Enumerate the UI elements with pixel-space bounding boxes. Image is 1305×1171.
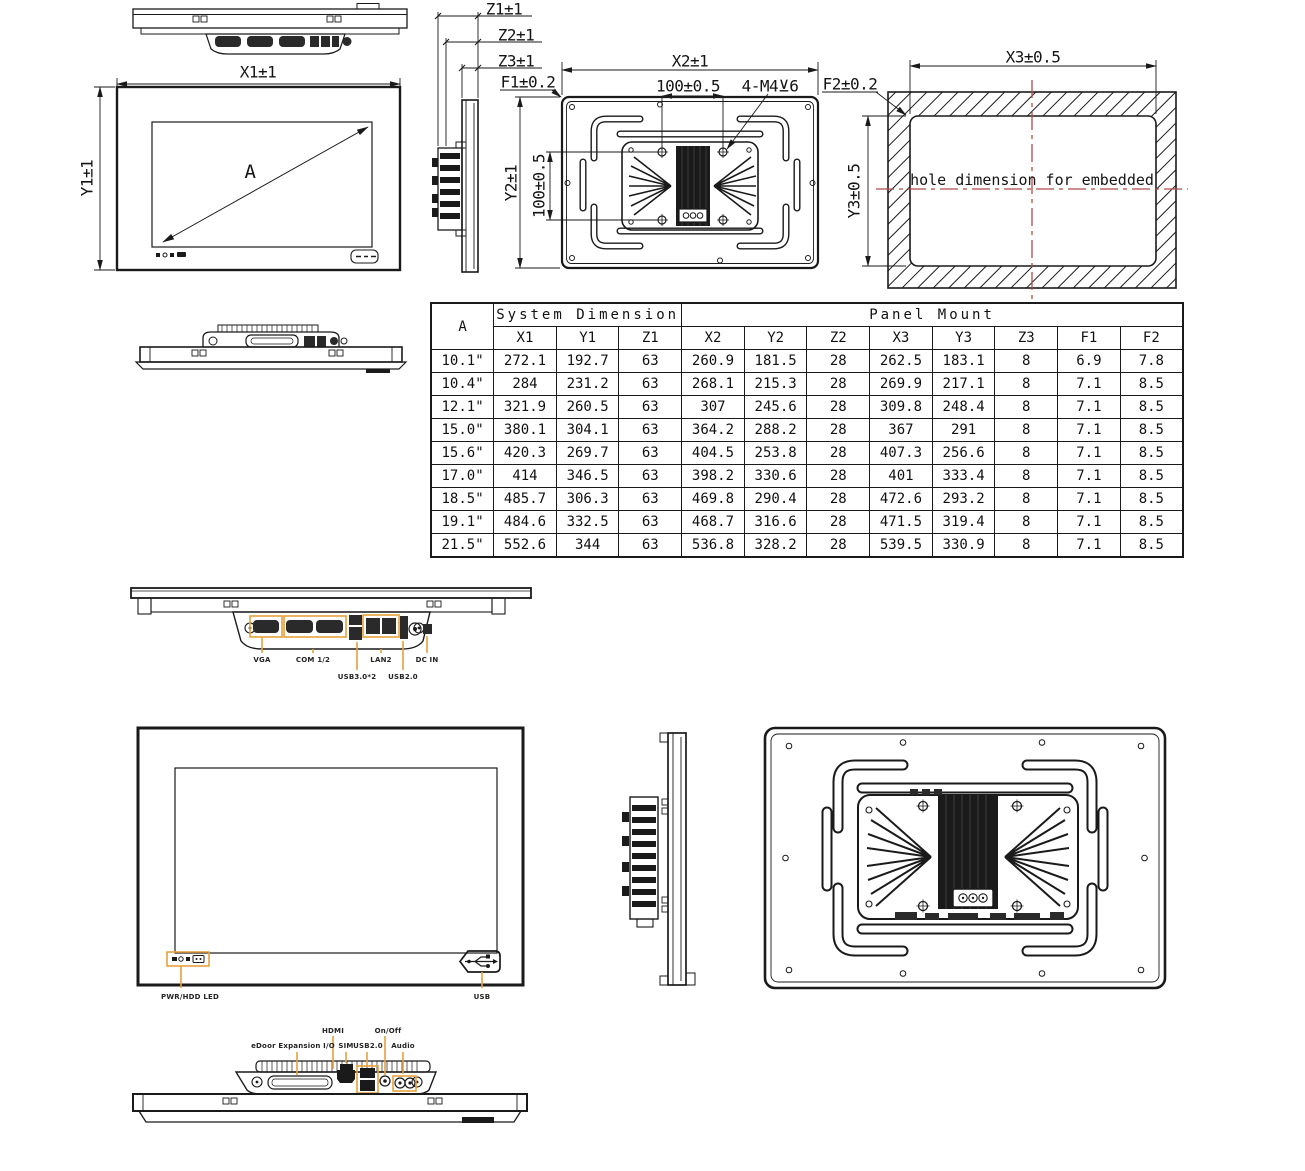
rear-view-large bbox=[765, 728, 1165, 988]
table-cell: 552.6 bbox=[494, 534, 557, 558]
table-cell: 7.8 bbox=[1120, 350, 1183, 373]
table-cell: 260.9 bbox=[682, 350, 745, 373]
dim-z1-label: Z1±1 bbox=[486, 0, 523, 19]
table-cell: 330.6 bbox=[744, 465, 807, 488]
dim-f2-label: F2±0.2 bbox=[823, 75, 878, 94]
table-subheader-row: X1Y1Z1X2Y2Z2X3Y3Z3F1F2 bbox=[431, 327, 1183, 350]
dim-z2-label: Z2±1 bbox=[498, 26, 535, 45]
dim-x1-label: X1±1 bbox=[240, 63, 277, 82]
table-cell: 7.1 bbox=[1058, 488, 1121, 511]
port-label-hdmi: HDMI bbox=[322, 1027, 344, 1035]
table-cell: 12.1" bbox=[431, 396, 494, 419]
side-view-large bbox=[622, 733, 695, 985]
table-cell: 260.5 bbox=[556, 396, 619, 419]
table-cell: 539.5 bbox=[870, 534, 933, 558]
led-indicators bbox=[156, 252, 186, 257]
table-cell: 8.5 bbox=[1120, 534, 1183, 558]
port-label-vga: VGA bbox=[253, 656, 270, 664]
table-cell: 472.6 bbox=[870, 488, 933, 511]
table-cell: 63 bbox=[619, 396, 682, 419]
cutout-note: hole dimension for embedded bbox=[910, 171, 1154, 189]
table-subheader: X2 bbox=[682, 327, 745, 350]
table-cell: 8.5 bbox=[1120, 488, 1183, 511]
table-cell: 288.2 bbox=[744, 419, 807, 442]
table-cell: 217.1 bbox=[932, 373, 995, 396]
table-cell: 7.1 bbox=[1058, 373, 1121, 396]
rear-nameplate bbox=[679, 209, 707, 222]
table-cell: 330.9 bbox=[932, 534, 995, 558]
table-cell: 8.5 bbox=[1120, 419, 1183, 442]
table-cell: 10.1" bbox=[431, 350, 494, 373]
table-cell: 63 bbox=[619, 488, 682, 511]
table-cell: 63 bbox=[619, 350, 682, 373]
table-cell: 291 bbox=[932, 419, 995, 442]
table-subheader: Y2 bbox=[744, 327, 807, 350]
table-cell: 8.5 bbox=[1120, 373, 1183, 396]
table-cell: 8 bbox=[995, 465, 1058, 488]
table-cell: 293.2 bbox=[932, 488, 995, 511]
diagonal-label: A bbox=[245, 161, 256, 183]
port-label-audio: Audio bbox=[391, 1042, 415, 1050]
led-label: PWR/HDD LED bbox=[161, 993, 219, 1001]
dim-y3-label: Y3±0.5 bbox=[845, 164, 864, 219]
table-cell: 6.9 bbox=[1058, 350, 1121, 373]
table-cell: 8.5 bbox=[1120, 511, 1183, 534]
dimension-table-rows: 10.1"272.1192.763260.9181.528262.5183.18… bbox=[431, 350, 1183, 558]
top-view bbox=[133, 4, 407, 55]
table-cell: 304.1 bbox=[556, 419, 619, 442]
table-cell: 344 bbox=[556, 534, 619, 558]
table-cell: 8 bbox=[995, 534, 1058, 558]
table-row: 17.0"414346.563398.2330.628401333.487.18… bbox=[431, 465, 1183, 488]
table-cell: 398.2 bbox=[682, 465, 745, 488]
table-subheader: Z3 bbox=[995, 327, 1058, 350]
table-cell: 321.9 bbox=[494, 396, 557, 419]
table-cell: 17.0" bbox=[431, 465, 494, 488]
table-cell: 380.1 bbox=[494, 419, 557, 442]
table-cell: 63 bbox=[619, 373, 682, 396]
port-label-com: COM 1/2 bbox=[296, 656, 330, 664]
table-cell: 284 bbox=[494, 373, 557, 396]
table-cell: 28 bbox=[807, 396, 870, 419]
io-bottom-view bbox=[131, 588, 531, 649]
dim-y2-label: Y2±1 bbox=[502, 165, 521, 202]
table-subheader: X3 bbox=[870, 327, 933, 350]
table-cell: 7.1 bbox=[1058, 534, 1121, 558]
table-cell: 401 bbox=[870, 465, 933, 488]
table-cell: 248.4 bbox=[932, 396, 995, 419]
table-cell: 8 bbox=[995, 373, 1058, 396]
table-cell: 7.1 bbox=[1058, 396, 1121, 419]
table-cell: 28 bbox=[807, 350, 870, 373]
table-subheader: F2 bbox=[1120, 327, 1183, 350]
table-cell: 290.4 bbox=[744, 488, 807, 511]
table-cell: 8 bbox=[995, 511, 1058, 534]
table-row: 12.1"321.9260.563307245.628309.8248.487.… bbox=[431, 396, 1183, 419]
table-cell: 63 bbox=[619, 442, 682, 465]
port-label-usb2b: USB2.0 bbox=[353, 1042, 383, 1050]
dimension-table: A System Dimension Panel Mount X1Y1Z1X2Y… bbox=[430, 302, 1184, 558]
table-cell: 471.5 bbox=[870, 511, 933, 534]
drawing-canvas: X1±1 Y1±1 Z1±1 Z2±1 Z3±1 F1±0.2 X2±1 100… bbox=[0, 0, 1305, 1171]
table-row: 18.5"485.7306.363469.8290.428472.6293.28… bbox=[431, 488, 1183, 511]
table-cell: 18.5" bbox=[431, 488, 494, 511]
table-cell: 28 bbox=[807, 373, 870, 396]
table-cell: 10.4" bbox=[431, 373, 494, 396]
table-cell: 8.5 bbox=[1120, 465, 1183, 488]
table-cell: 7.1 bbox=[1058, 419, 1121, 442]
table-cell: 346.5 bbox=[556, 465, 619, 488]
table-cell: 420.3 bbox=[494, 442, 557, 465]
table-cell: 8 bbox=[995, 419, 1058, 442]
table-cell: 404.5 bbox=[682, 442, 745, 465]
table-cell: 63 bbox=[619, 465, 682, 488]
bottom-bar-large bbox=[133, 1094, 527, 1123]
table-cell: 7.1 bbox=[1058, 511, 1121, 534]
dim-x2-label: X2±1 bbox=[672, 52, 709, 71]
table-cell: 306.3 bbox=[556, 488, 619, 511]
table-cell: 8.5 bbox=[1120, 396, 1183, 419]
table-cell: 333.4 bbox=[932, 465, 995, 488]
table-cell: 256.6 bbox=[932, 442, 995, 465]
table-cell: 319.4 bbox=[932, 511, 995, 534]
table-row: 15.0"380.1304.163364.2288.22836729187.18… bbox=[431, 419, 1183, 442]
brand-logo bbox=[351, 250, 378, 263]
table-cell: 8.5 bbox=[1120, 442, 1183, 465]
table-cell: 28 bbox=[807, 488, 870, 511]
table-cell: 15.6" bbox=[431, 442, 494, 465]
usb-icon bbox=[460, 951, 500, 972]
dim-f1-label: F1±0.2 bbox=[501, 73, 556, 92]
table-cell: 28 bbox=[807, 465, 870, 488]
table-cell: 367 bbox=[870, 419, 933, 442]
table-cell: 28 bbox=[807, 534, 870, 558]
table-cell: 309.8 bbox=[870, 396, 933, 419]
table-cell: 332.5 bbox=[556, 511, 619, 534]
table-cell: 269.9 bbox=[870, 373, 933, 396]
table-cell: 268.1 bbox=[682, 373, 745, 396]
table-cell: 484.6 bbox=[494, 511, 557, 534]
table-cell: 316.6 bbox=[744, 511, 807, 534]
table-cell: 28 bbox=[807, 442, 870, 465]
table-cell: 7.1 bbox=[1058, 442, 1121, 465]
table-cell: 28 bbox=[807, 419, 870, 442]
port-label-edoor: eDoor Expansion I/O bbox=[251, 1042, 335, 1050]
table-cell: 253.8 bbox=[744, 442, 807, 465]
usb-label: USB bbox=[474, 993, 491, 1001]
table-cell: 28 bbox=[807, 511, 870, 534]
table-cell: 364.2 bbox=[682, 419, 745, 442]
table-group-header-row: A System Dimension Panel Mount bbox=[431, 303, 1183, 327]
table-cell: 63 bbox=[619, 534, 682, 558]
port-label-usb2: USB2.0 bbox=[388, 673, 418, 681]
bottom-view-small bbox=[136, 325, 406, 373]
table-cell: 192.7 bbox=[556, 350, 619, 373]
table-row: 15.6"420.3269.763404.5253.828407.3256.68… bbox=[431, 442, 1183, 465]
table-cell: 407.3 bbox=[870, 442, 933, 465]
table-subheader: Z1 bbox=[619, 327, 682, 350]
table-row: 19.1"484.6332.563468.7316.628471.5319.48… bbox=[431, 511, 1183, 534]
io-bottom-view-2 bbox=[236, 1061, 436, 1094]
port-label-dcin: DC IN bbox=[416, 656, 439, 664]
port-label-sim: SIM bbox=[338, 1042, 353, 1050]
table-cell: 15.0" bbox=[431, 419, 494, 442]
table-cell: 468.7 bbox=[682, 511, 745, 534]
table-row: 21.5"552.634463536.8328.228539.5330.987.… bbox=[431, 534, 1183, 558]
port-label-usb3: USB3.0*2 bbox=[338, 673, 377, 681]
table-cell: 8 bbox=[995, 442, 1058, 465]
table-cell: 469.8 bbox=[682, 488, 745, 511]
dim-vesa-v-label: 100±0.5 bbox=[530, 154, 549, 218]
table-subheader: Y3 bbox=[932, 327, 995, 350]
dim-screws-label: 4-M4⊻6 bbox=[742, 77, 799, 96]
table-cell: 8 bbox=[995, 350, 1058, 373]
table-cell: 19.1" bbox=[431, 511, 494, 534]
port-label-lan: LAN2 bbox=[370, 656, 391, 664]
rear-view bbox=[562, 97, 818, 268]
table-header-panel-mount: Panel Mount bbox=[682, 303, 1183, 327]
table-subheader: Z2 bbox=[807, 327, 870, 350]
front-view bbox=[117, 87, 400, 270]
table-cell: 328.2 bbox=[744, 534, 807, 558]
rear-nameplate-large bbox=[953, 889, 993, 907]
dim-x3-label: X3±0.5 bbox=[1006, 48, 1061, 67]
dim-vesa-h-label: 100±0.5 bbox=[656, 77, 720, 96]
table-header-system-dimension: System Dimension bbox=[494, 303, 682, 327]
table-cell: 181.5 bbox=[744, 350, 807, 373]
table-cell: 183.1 bbox=[932, 350, 995, 373]
table-cell: 63 bbox=[619, 511, 682, 534]
table-subheader: Y1 bbox=[556, 327, 619, 350]
table-row: 10.1"272.1192.763260.9181.528262.5183.18… bbox=[431, 350, 1183, 373]
front-highlights bbox=[167, 952, 482, 988]
table-cell: 8 bbox=[995, 488, 1058, 511]
table-cell: 307 bbox=[682, 396, 745, 419]
table-cell: 21.5" bbox=[431, 534, 494, 558]
table-row: 10.4"284231.263268.1215.328269.9217.187.… bbox=[431, 373, 1183, 396]
table-subheader: F1 bbox=[1058, 327, 1121, 350]
led-indicators-large bbox=[172, 956, 204, 963]
table-cell: 245.6 bbox=[744, 396, 807, 419]
table-cell: 269.7 bbox=[556, 442, 619, 465]
table-cell: 7.1 bbox=[1058, 465, 1121, 488]
table-cell: 414 bbox=[494, 465, 557, 488]
dim-y1-label: Y1±1 bbox=[78, 160, 97, 197]
table-cell: 63 bbox=[619, 419, 682, 442]
table-cell: 536.8 bbox=[682, 534, 745, 558]
table-cell: 215.3 bbox=[744, 373, 807, 396]
port-label-onoff: On/Off bbox=[375, 1027, 402, 1035]
table-cell: 485.7 bbox=[494, 488, 557, 511]
table-cell: 262.5 bbox=[870, 350, 933, 373]
table-header-a: A bbox=[431, 303, 494, 350]
panel-cutout-view bbox=[876, 80, 1188, 300]
front-view-large bbox=[138, 728, 523, 985]
dim-z3-label: Z3±1 bbox=[498, 52, 535, 71]
table-subheader: X1 bbox=[494, 327, 557, 350]
table-cell: 272.1 bbox=[494, 350, 557, 373]
side-view bbox=[432, 100, 478, 272]
table-cell: 231.2 bbox=[556, 373, 619, 396]
table-cell: 8 bbox=[995, 396, 1058, 419]
